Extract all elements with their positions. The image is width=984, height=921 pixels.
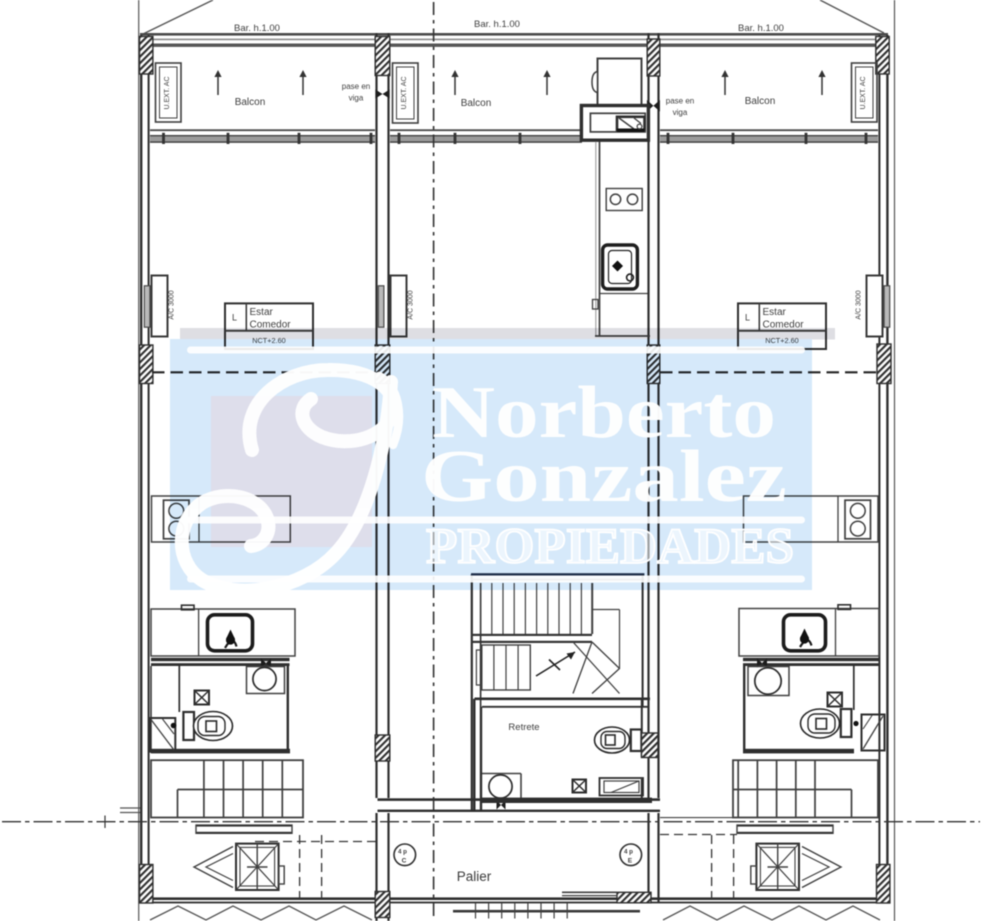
svg-text:pase en: pase en (666, 97, 694, 106)
svg-text:A/C 3000: A/C 3000 (169, 290, 176, 319)
svg-text:Balcon: Balcon (745, 96, 776, 107)
svg-text:U.EXT. AC: U.EXT. AC (860, 76, 867, 109)
svg-text:Bar. h.1.00: Bar. h.1.00 (738, 23, 784, 34)
svg-text:viga: viga (349, 94, 364, 103)
svg-text:C: C (402, 858, 407, 865)
svg-text:Bar. h.1.00: Bar. h.1.00 (234, 23, 280, 34)
svg-text:PROPIEDADES: PROPIEDADES (426, 519, 794, 575)
svg-text:viga: viga (673, 108, 688, 117)
svg-text:Gonzalez: Gonzalez (421, 436, 787, 518)
svg-text:Balcon: Balcon (235, 97, 266, 108)
svg-text:L: L (745, 313, 750, 323)
svg-text:A/C 3000: A/C 3000 (408, 290, 415, 319)
svg-text:4 p: 4 p (624, 849, 633, 856)
svg-text:4 p: 4 p (398, 849, 407, 856)
svg-text:Palier: Palier (457, 869, 492, 884)
svg-text:Estar: Estar (763, 307, 787, 318)
svg-text:A/C 3000: A/C 3000 (856, 290, 863, 319)
svg-text:Bar. h.1.00: Bar. h.1.00 (474, 19, 520, 30)
svg-text:Balcon: Balcon (461, 98, 492, 109)
svg-text:L: L (232, 313, 237, 323)
svg-text:Estar: Estar (250, 307, 274, 318)
svg-text:Retrete: Retrete (508, 722, 539, 733)
svg-text:E: E (628, 858, 633, 865)
svg-text:U.EXT. AC: U.EXT. AC (401, 76, 408, 109)
svg-text:pase en: pase en (342, 82, 370, 91)
svg-text:U.EXT. AC: U.EXT. AC (164, 76, 171, 109)
